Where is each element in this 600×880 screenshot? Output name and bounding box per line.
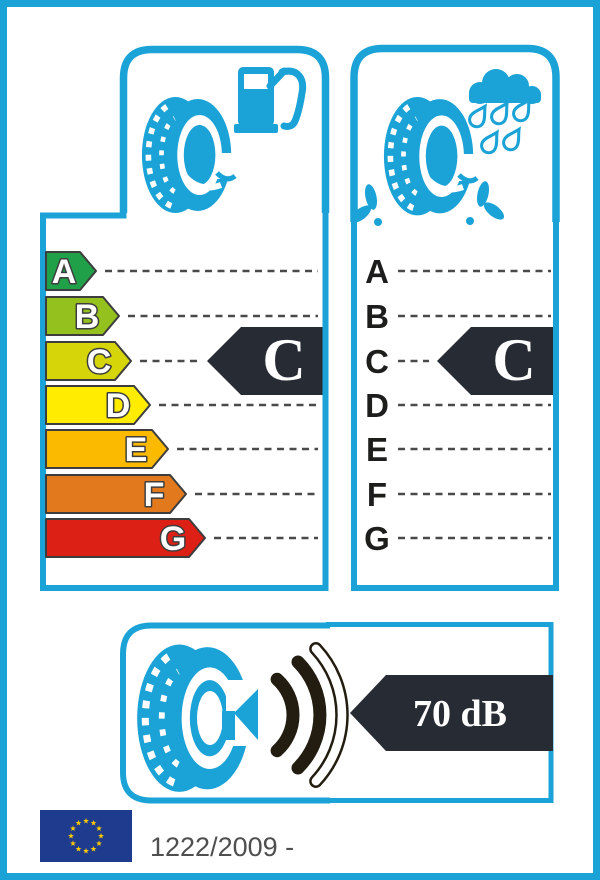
fuel-efficiency-panel: A B C D E F G C <box>43 50 326 589</box>
grade-letter-g: G <box>160 520 186 558</box>
wet-rating-value: C <box>492 327 535 393</box>
grade-letter-d: D <box>106 387 131 425</box>
wet-letter-f: F <box>367 476 387 513</box>
tyre-label: A B C D E F G C <box>0 0 600 880</box>
footer: 1222/2009 - <box>40 810 294 862</box>
pump-base <box>234 124 278 133</box>
grade-arrow-e <box>46 430 168 468</box>
wet-letter-b: B <box>365 298 389 335</box>
pump-screen <box>244 74 268 89</box>
regulation-text: 1222/2009 - <box>150 832 294 862</box>
wet-letter-d: D <box>365 387 389 424</box>
fuel-rating-value: C <box>262 327 305 393</box>
grade-letter-c: C <box>87 343 112 381</box>
grade-letter-a: A <box>52 253 77 291</box>
wet-grade-scale: A B C D E F G <box>364 253 390 557</box>
grade-letter-e: E <box>125 431 148 469</box>
noise-panel: 70 dB <box>123 625 553 801</box>
eu-flag <box>40 810 132 862</box>
noise-rating-arrow: 70 dB <box>350 675 553 751</box>
grade-letter-b: B <box>75 298 100 336</box>
wet-letter-c: C <box>365 343 389 380</box>
wet-letter-e: E <box>366 431 388 468</box>
tyre-label-canvas: A B C D E F G C <box>0 0 600 880</box>
wet-grip-panel: A B C D E F G C <box>348 49 556 589</box>
noise-value-text: 70 dB <box>413 693 507 735</box>
tire-hub-center <box>197 691 223 745</box>
wet-letter-a: A <box>365 253 389 290</box>
grade-arrow-d <box>46 386 150 424</box>
wet-letter-g: G <box>364 520 390 557</box>
grade-arrow-f <box>46 475 186 513</box>
grade-letter-f: F <box>144 476 165 514</box>
